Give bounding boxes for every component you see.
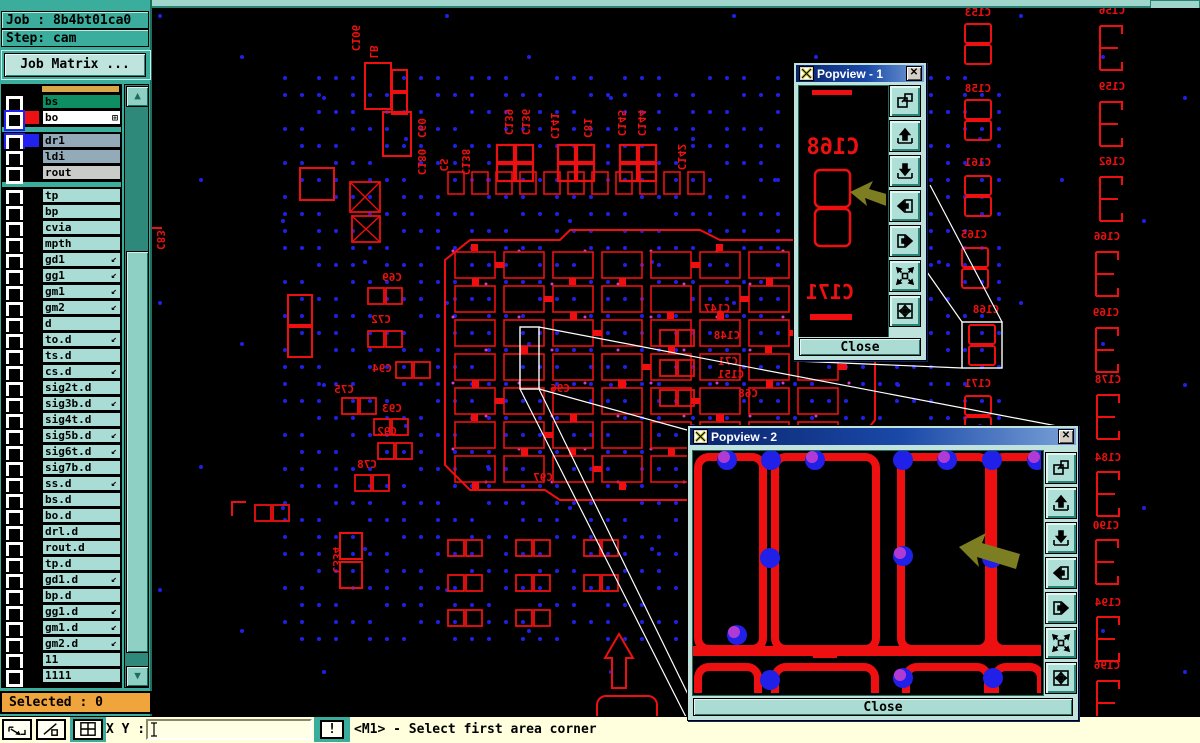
layer-color-swatch xyxy=(25,205,39,218)
layer-label: bo.d xyxy=(42,508,121,523)
layer-row-tp.d[interactable]: tp.d xyxy=(2,556,121,572)
layer-color-swatch xyxy=(25,669,39,682)
layer-context-arrow-icon: ↙ xyxy=(111,269,117,282)
layer-row-bp.d[interactable]: bp.d xyxy=(2,588,121,604)
silkscreen-label: C166 xyxy=(1093,230,1120,243)
layer-color-swatch xyxy=(25,573,39,586)
layer-label: gg1.d↙ xyxy=(42,604,121,619)
layer-color-swatch xyxy=(25,150,39,163)
layer-color-swatch xyxy=(25,525,39,538)
layer-row-ss.d[interactable]: ss.d↙ xyxy=(2,476,121,492)
layer-label: d xyxy=(42,316,121,331)
popview-1-toolbar xyxy=(889,85,921,327)
popview-app-icon xyxy=(799,66,814,81)
layer-row-bo.d[interactable]: bo.d xyxy=(2,508,121,524)
layer-color-swatch xyxy=(25,653,39,666)
popview-1-pan-down-button[interactable] xyxy=(889,155,921,187)
layer-context-arrow-icon: ↙ xyxy=(111,285,117,298)
layer-label: bp.d xyxy=(42,588,121,603)
popview-1-window: Popview - 1 ✕ C168C171 Close xyxy=(793,62,927,361)
layer-color-swatch xyxy=(25,285,39,298)
layer-row-to.d[interactable]: to.d↙ xyxy=(2,332,121,348)
layer-label: tp.d xyxy=(42,556,121,571)
popview-1-fit-view-button[interactable] xyxy=(889,260,921,292)
layer-color-swatch xyxy=(25,477,39,490)
silkscreen-label: C106 xyxy=(349,24,362,51)
layer-label: cvia xyxy=(42,220,121,235)
layer-list: bsbo⊞dr1ldirouttpbpcviampthgd1↙gg1↙gm1↙g… xyxy=(1,93,122,688)
layer-row-partial[interactable] xyxy=(1,84,122,93)
silkscreen-label: C97 xyxy=(533,471,553,484)
silkscreen-label: C161 xyxy=(964,156,991,169)
silkscreen-label: C158 xyxy=(965,82,992,95)
layer-row-gg1.d[interactable]: gg1.d↙ xyxy=(2,604,121,620)
layer-context-arrow-icon: ↙ xyxy=(111,477,117,490)
layer-row-rout[interactable]: rout xyxy=(2,165,121,181)
scroll-down-button[interactable]: ▼ xyxy=(126,666,149,687)
silkscreen-label: C153 xyxy=(965,8,992,19)
silkscreen-label: C78 xyxy=(357,458,377,471)
silkscreen-label: C94 xyxy=(372,362,392,375)
popview-1-close-icon[interactable]: ✕ xyxy=(906,66,922,81)
layer-color-swatch xyxy=(25,541,39,554)
silkscreen-label: C196 xyxy=(1093,659,1120,672)
measure-button[interactable] xyxy=(36,719,66,740)
popview-1-center-view-button[interactable] xyxy=(889,295,921,327)
layer-row-sig7b.d[interactable]: sig7b.d xyxy=(2,460,121,476)
layer-label: cs.d↙ xyxy=(42,364,121,379)
layer-color-swatch xyxy=(25,397,39,410)
silkscreen-label: C148 xyxy=(714,329,741,342)
layer-label: dr1 xyxy=(42,133,121,148)
silkscreen-label: C334 xyxy=(330,546,343,573)
job-matrix-button[interactable]: Job Matrix ... xyxy=(4,53,146,77)
layer-color-swatch xyxy=(25,557,39,570)
layer-context-arrow-icon: ↙ xyxy=(111,637,117,650)
layer-color-swatch xyxy=(25,445,39,458)
silkscreen-label: C142 xyxy=(675,144,688,171)
layer-color-swatch xyxy=(25,461,39,474)
layer-row-tp[interactable]: tp xyxy=(2,188,121,204)
window-grid-frame xyxy=(70,717,106,742)
pan-right-icon xyxy=(895,231,915,251)
layer-label: ts.d xyxy=(42,348,121,363)
job-matrix-frame: Job Matrix ... xyxy=(1,50,151,80)
silkscreen-label: C75 xyxy=(334,383,354,396)
pan-up-icon xyxy=(895,126,915,146)
popview-app-icon xyxy=(693,429,708,444)
layer-color-swatch xyxy=(25,134,39,147)
layer-color-swatch xyxy=(25,493,39,506)
popview-2-fit-view-button[interactable] xyxy=(1045,627,1077,659)
area-select-button[interactable]: area select xyxy=(2,719,32,740)
layer-row-gg1[interactable]: gg1↙ xyxy=(2,268,121,284)
layer-label: 11 xyxy=(42,652,121,667)
layer-grid-icon: ⊞ xyxy=(112,112,118,125)
popview-2-pan-up-button[interactable] xyxy=(1045,487,1077,519)
silkscreen-label: C83 xyxy=(154,230,167,250)
silkscreen-label: C194 xyxy=(1094,596,1121,609)
layer-color-swatch xyxy=(25,621,39,634)
svg-text:C171: C171 xyxy=(806,280,854,304)
window-grid-button[interactable] xyxy=(73,719,103,740)
center-view-icon xyxy=(1051,668,1071,688)
layer-row-bs.d[interactable]: bs.d xyxy=(2,492,121,508)
layer-row-11[interactable]: 11 xyxy=(2,652,121,668)
layer-scrollbar[interactable]: ▲ ▼ xyxy=(124,84,149,688)
layer-label: ldi xyxy=(42,149,121,164)
layer-label: bs xyxy=(42,94,121,109)
popview-2-title: Popview - 2 xyxy=(711,430,1058,444)
silkscreen-label: C190 xyxy=(1093,519,1120,532)
layer-checkbox-1111[interactable] xyxy=(6,670,23,687)
layer-context-arrow-icon: ↙ xyxy=(111,573,117,586)
layer-label: sig6t.d↙ xyxy=(42,444,121,459)
layer-color-swatch xyxy=(25,381,39,394)
popview-1-pan-left-button[interactable] xyxy=(889,190,921,222)
layer-label: ss.d↙ xyxy=(42,476,121,491)
popview-1-title: Popview - 1 xyxy=(817,67,906,81)
silkscreen-label: C151 xyxy=(717,368,744,381)
layer-row-sig5b.d[interactable]: sig5b.d↙ xyxy=(2,428,121,444)
layer-label: rout xyxy=(42,165,121,180)
layer-color-swatch xyxy=(25,429,39,442)
layer-color-swatch xyxy=(25,333,39,346)
silkscreen-label: C180 xyxy=(415,149,428,176)
layer-color-swatch xyxy=(25,317,39,330)
silkscreen-label: C162 xyxy=(1099,155,1126,168)
layer-color-swatch xyxy=(25,95,39,108)
canvas-top-strip xyxy=(152,0,1200,8)
silkscreen-label: C136 xyxy=(519,108,532,135)
popview-1-pan-up-button[interactable] xyxy=(889,120,921,152)
popview-2-window: Popview - 2 ✕ Close xyxy=(687,425,1079,721)
silkscreen-label: C93 xyxy=(382,402,402,415)
silkscreen-label: LB xyxy=(367,45,380,59)
layer-row-gm1.d[interactable]: gm1.d↙ xyxy=(2,620,121,636)
layer-label: gg1↙ xyxy=(42,268,121,283)
popview-2-copy-window-button[interactable] xyxy=(1045,452,1077,484)
layer-color-swatch xyxy=(25,237,39,250)
layer-row-gm2[interactable]: gm2↙ xyxy=(2,300,121,316)
pan-right-icon xyxy=(1051,598,1071,618)
silkscreen-label: C165 xyxy=(961,228,988,241)
silkscreen-label: C178 xyxy=(1095,373,1122,386)
silkscreen-label: C147 xyxy=(704,302,731,315)
layer-label: tp xyxy=(42,188,121,203)
layer-row-bp[interactable]: bp xyxy=(2,204,121,220)
popview-1-titlebar[interactable]: Popview - 1 ✕ xyxy=(796,65,924,82)
layer-row-gd1.d[interactable]: gd1.d↙ xyxy=(2,572,121,588)
layer-context-arrow-icon: ↙ xyxy=(111,621,117,634)
layer-row-bo[interactable]: bo⊞ xyxy=(2,110,121,126)
layer-row-bs[interactable]: bs xyxy=(2,94,121,110)
layer-row-cvia[interactable]: cvia xyxy=(2,220,121,236)
layer-row-dr1[interactable]: dr1 xyxy=(2,133,121,149)
center-view-icon xyxy=(895,301,915,321)
pan-up-icon xyxy=(1051,493,1071,513)
layer-row-sig4t.d[interactable]: sig4t.d xyxy=(2,412,121,428)
layer-label: 1111 xyxy=(42,668,121,683)
layer-row-sig3b.d[interactable]: sig3b.d↙ xyxy=(2,396,121,412)
popview-2-viewport[interactable] xyxy=(692,450,1044,696)
popview-2-center-view-button[interactable] xyxy=(1045,662,1077,694)
copy-window-icon xyxy=(1051,458,1071,478)
layer-color-swatch xyxy=(25,111,39,124)
layer-label: bp xyxy=(42,204,121,219)
layer-label: sig7b.d xyxy=(42,460,121,475)
layer-row-gm1[interactable]: gm1↙ xyxy=(2,284,121,300)
popview-1-closebar: Close xyxy=(797,337,923,357)
layer-context-arrow-icon: ↙ xyxy=(111,365,117,378)
silkscreen-label: C171 xyxy=(964,377,991,390)
status-message: <M1> - Select first area corner xyxy=(354,722,597,737)
layer-checkbox-bo[interactable] xyxy=(6,112,23,129)
layer-label: gm1↙ xyxy=(42,284,121,299)
layer-row-cs.d[interactable]: cs.d↙ xyxy=(2,364,121,380)
pan-left-icon xyxy=(1051,563,1071,583)
silkscreen-label: C69 xyxy=(382,271,402,284)
layer-row-sig6t.d[interactable]: sig6t.d↙ xyxy=(2,444,121,460)
layer-label: sig4t.d xyxy=(42,412,121,427)
layer-color-swatch xyxy=(25,365,39,378)
popview-2-close-icon[interactable]: ✕ xyxy=(1058,429,1074,444)
layer-label: sig2t.d xyxy=(42,380,121,395)
popview-1-pan-right-button[interactable] xyxy=(889,225,921,257)
layer-context-arrow-icon: ↙ xyxy=(111,605,117,618)
layer-context-arrow-icon: ↙ xyxy=(111,253,117,266)
layer-label: gm2.d↙ xyxy=(42,636,121,651)
layer-color-swatch xyxy=(25,301,39,314)
layer-color-swatch xyxy=(25,221,39,234)
layer-label: to.d↙ xyxy=(42,332,121,347)
popview-2-toolbar xyxy=(1045,452,1077,694)
layer-row-ldi[interactable]: ldi xyxy=(2,149,121,165)
alert-button[interactable]: ! xyxy=(320,720,344,739)
popview-2-close-button[interactable]: Close xyxy=(693,698,1073,716)
layer-context-arrow-icon: ↙ xyxy=(111,397,117,410)
layer-row-rout.d[interactable]: rout.d xyxy=(2,540,121,556)
job-name-label: Job : 8b4bt01ca0 xyxy=(1,11,149,29)
popview-1-close-button[interactable]: Close xyxy=(799,338,921,356)
silkscreen-label: C138 xyxy=(459,149,472,176)
layer-checkbox-rout[interactable] xyxy=(6,167,23,184)
silkscreen-label: C145 xyxy=(615,110,628,137)
silkscreen-label: C159 xyxy=(1099,80,1126,93)
layer-color-swatch xyxy=(25,413,39,426)
layer-row-ts.d[interactable]: ts.d xyxy=(2,348,121,364)
popview-2-closebar: Close xyxy=(691,697,1075,717)
xy-coordinate-input[interactable] xyxy=(146,719,312,740)
popview-2-pan-right-button[interactable] xyxy=(1045,592,1077,624)
silkscreen-label: C169 xyxy=(1093,306,1120,319)
layer-color-swatch xyxy=(25,637,39,650)
popview-2-pan-down-button[interactable] xyxy=(1045,522,1077,554)
layer-label: bo⊞ xyxy=(42,110,121,125)
popview-1-copy-window-button[interactable] xyxy=(889,85,921,117)
silkscreen-label: C68 xyxy=(738,387,758,400)
fit-view-icon xyxy=(1051,633,1071,653)
step-name-label: Step: cam xyxy=(1,29,149,47)
silkscreen-label: C92 xyxy=(377,425,397,438)
silkscreen-label: C60 xyxy=(415,118,428,138)
silkscreen-label: C141 xyxy=(548,112,561,139)
silkscreen-label: C72 xyxy=(371,313,391,326)
svg-text:C168: C168 xyxy=(807,135,860,160)
layer-label: sig5b.d↙ xyxy=(42,428,121,443)
scroll-thumb[interactable] xyxy=(126,251,149,653)
layer-context-arrow-icon: ↙ xyxy=(111,445,117,458)
layer-row-sig2t.d[interactable]: sig2t.d xyxy=(2,380,121,396)
layer-color-swatch xyxy=(25,349,39,362)
popview-1-viewport[interactable]: C168C171 xyxy=(798,85,889,340)
layer-partial-color xyxy=(41,85,120,93)
layer-context-arrow-icon: ↙ xyxy=(111,301,117,314)
layer-label: sig3b.d↙ xyxy=(42,396,121,411)
layer-color-swatch xyxy=(25,166,39,179)
xy-coordinate-label: X Y : xyxy=(106,722,145,737)
fit-view-icon xyxy=(895,266,915,286)
layer-label: gd1↙ xyxy=(42,252,121,267)
selected-count-label: Selected : 0 xyxy=(0,691,152,714)
popview-2-pan-left-button[interactable] xyxy=(1045,557,1077,589)
layer-label: rout.d xyxy=(42,540,121,555)
layer-color-swatch xyxy=(25,253,39,266)
layer-context-arrow-icon: ↙ xyxy=(111,429,117,442)
layer-context-arrow-icon: ↙ xyxy=(111,333,117,346)
layer-label: drl.d xyxy=(42,524,121,539)
layer-row-drl.d[interactable]: drl.d xyxy=(2,524,121,540)
layer-color-swatch xyxy=(25,605,39,618)
silkscreen-label: CS xyxy=(437,158,450,171)
layers-sidebar: Job : 8b4bt01ca0 Step: cam Job Matrix ..… xyxy=(0,0,152,716)
pan-down-icon xyxy=(1051,528,1071,548)
silkscreen-label: C156 xyxy=(1098,8,1125,17)
layer-color-swatch xyxy=(25,269,39,282)
layer-color-swatch xyxy=(25,189,39,202)
pan-left-icon xyxy=(895,196,915,216)
layer-label: gd1.d↙ xyxy=(42,572,121,587)
popview-2-titlebar[interactable]: Popview - 2 ✕ xyxy=(690,428,1076,445)
layer-label: gm2↙ xyxy=(42,300,121,315)
layer-row-gm2.d[interactable]: gm2.d↙ xyxy=(2,636,121,652)
layer-row-d[interactable]: d xyxy=(2,316,121,332)
pan-down-icon xyxy=(895,161,915,181)
silkscreen-label: C184 xyxy=(1094,451,1121,464)
silkscreen-label: C139 xyxy=(502,109,515,136)
layer-color-swatch xyxy=(25,509,39,522)
layer-label: gm1.d↙ xyxy=(42,620,121,635)
layer-label: mpth xyxy=(42,236,121,251)
layer-row-mpth[interactable]: mpth xyxy=(2,236,121,252)
silkscreen-label: C81 xyxy=(581,118,594,138)
layer-row-1111[interactable]: 1111 xyxy=(2,668,121,684)
scroll-up-button[interactable]: ▲ xyxy=(126,86,149,107)
layer-row-gd1[interactable]: gd1↙ xyxy=(2,252,121,268)
layer-color-swatch xyxy=(25,589,39,602)
silkscreen-label: C144 xyxy=(635,109,648,136)
copy-window-icon xyxy=(895,91,915,111)
layer-label: bs.d xyxy=(42,492,121,507)
